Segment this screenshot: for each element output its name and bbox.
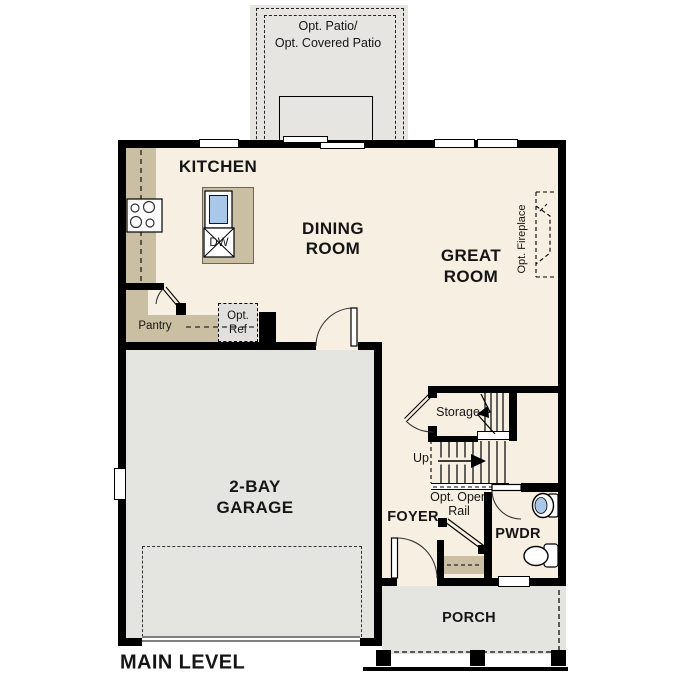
dining-door xyxy=(316,308,357,346)
patio-label-line1: Opt. Patio/ xyxy=(298,19,357,33)
up-label: Up xyxy=(413,451,429,465)
opt-ref-label-line2: Ref xyxy=(229,324,247,336)
room-label-dining-line2: ROOM xyxy=(306,239,360,259)
kitchen-sink-icon xyxy=(205,191,232,228)
toilet-icon xyxy=(533,494,559,518)
opt-ref-label-line1: Opt. xyxy=(227,310,249,322)
pantry-label: Pantry xyxy=(138,320,171,332)
fireplace-symbol xyxy=(536,192,556,277)
room-label-garage-line2: GARAGE xyxy=(216,498,293,518)
pwdr-door xyxy=(492,485,521,520)
room-label-great-line1: GREAT xyxy=(441,246,501,266)
up-arrow xyxy=(438,454,486,468)
open-rail-label-line2: Rail xyxy=(448,504,470,518)
front-door xyxy=(392,538,438,578)
cooktop-icon xyxy=(127,199,162,232)
storage-door xyxy=(405,393,434,433)
floor-plan: Opt. Patio/ Opt. Covered Patio KITCHEN D… xyxy=(0,0,687,687)
room-label-porch: PORCH xyxy=(442,610,496,626)
patio-label-line2: Opt. Covered Patio xyxy=(275,36,381,50)
pantry-door xyxy=(156,287,182,308)
closet-bifold-door xyxy=(445,519,487,551)
open-rail-label-line1: Opt. Open xyxy=(430,490,488,504)
room-label-great-line2: ROOM xyxy=(444,267,498,287)
fireplace-label: Opt. Fireplace xyxy=(516,204,528,273)
room-label-garage-line1: 2-BAY xyxy=(229,477,280,497)
plan-linework xyxy=(0,0,687,687)
plan-title: MAIN LEVEL xyxy=(120,652,245,675)
pedestal-sink-icon xyxy=(524,544,558,567)
dishwasher-label: DW xyxy=(209,237,228,249)
room-label-foyer: FOYER xyxy=(387,509,438,525)
room-label-dining-line1: DINING xyxy=(302,219,364,239)
garage-door-lines xyxy=(142,637,360,641)
room-label-pwdr: PWDR xyxy=(495,526,541,542)
storage-label: Storage xyxy=(436,405,480,419)
room-label-kitchen: KITCHEN xyxy=(179,157,257,177)
